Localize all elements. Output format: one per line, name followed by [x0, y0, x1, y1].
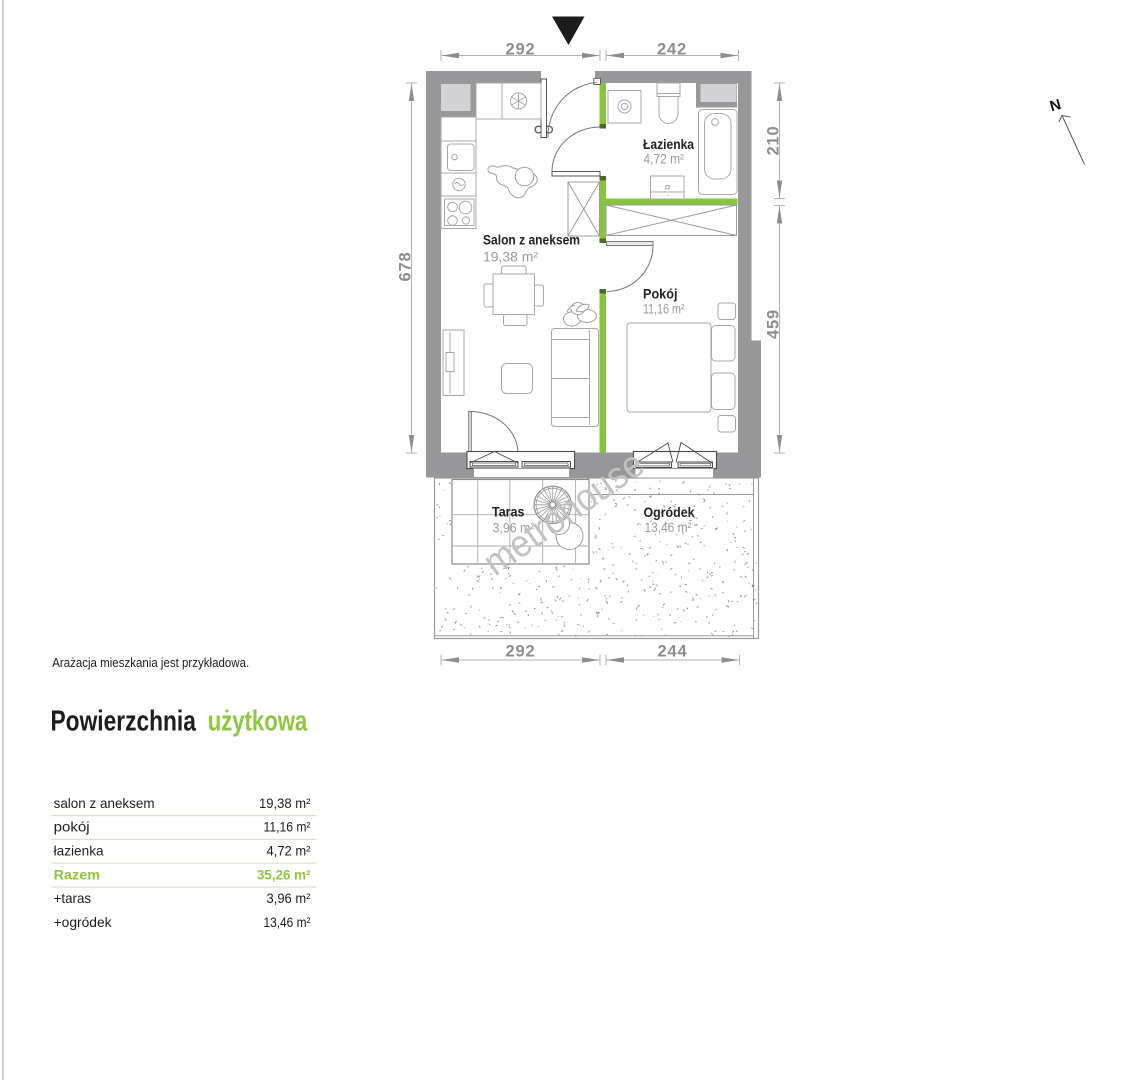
- svg-text:244: 244: [658, 643, 688, 661]
- svg-text:292: 292: [506, 643, 536, 661]
- svg-text:19,38 m²: 19,38 m²: [259, 795, 311, 811]
- svg-text:292: 292: [506, 41, 536, 59]
- svg-text:13,46 m²: 13,46 m²: [264, 914, 311, 930]
- svg-text:678: 678: [397, 252, 415, 282]
- svg-text:Taras: Taras: [492, 505, 525, 520]
- svg-text:Pokój: Pokój: [643, 287, 678, 302]
- svg-text:4,72 m²: 4,72 m²: [267, 843, 311, 859]
- svg-text:459: 459: [765, 309, 783, 339]
- svg-text:łazienka: łazienka: [54, 843, 104, 859]
- svg-text:Powierzchnia: Powierzchnia: [51, 706, 197, 738]
- svg-text:242: 242: [657, 41, 687, 59]
- svg-text:+ogródek: +ogródek: [54, 914, 113, 930]
- svg-text:Salon z aneksem: Salon z aneksem: [483, 233, 580, 248]
- svg-text:11,16 m²: 11,16 m²: [643, 302, 685, 317]
- svg-text:Razem: Razem: [54, 866, 100, 882]
- svg-text:pokój: pokój: [54, 819, 90, 835]
- svg-text:3,96 m²: 3,96 m²: [267, 890, 311, 906]
- svg-text:użytkowa: użytkowa: [208, 706, 308, 738]
- svg-text:Ogródek: Ogródek: [644, 505, 695, 520]
- svg-text:Arażacja mieszkania jest przyk: Arażacja mieszkania jest przykładowa.: [52, 655, 249, 670]
- svg-text:210: 210: [765, 126, 783, 156]
- svg-text:35,26 m²: 35,26 m²: [257, 866, 311, 882]
- svg-text:salon z aneksem: salon z aneksem: [54, 795, 155, 811]
- svg-text:13,46 m²: 13,46 m²: [645, 520, 692, 535]
- svg-text:19,38 m²: 19,38 m²: [483, 250, 538, 265]
- svg-text:Łazienka: Łazienka: [643, 137, 694, 152]
- svg-text:+taras: +taras: [54, 890, 92, 906]
- svg-text:11,16 m²: 11,16 m²: [264, 819, 311, 835]
- svg-text:4,72 m²: 4,72 m²: [644, 152, 685, 167]
